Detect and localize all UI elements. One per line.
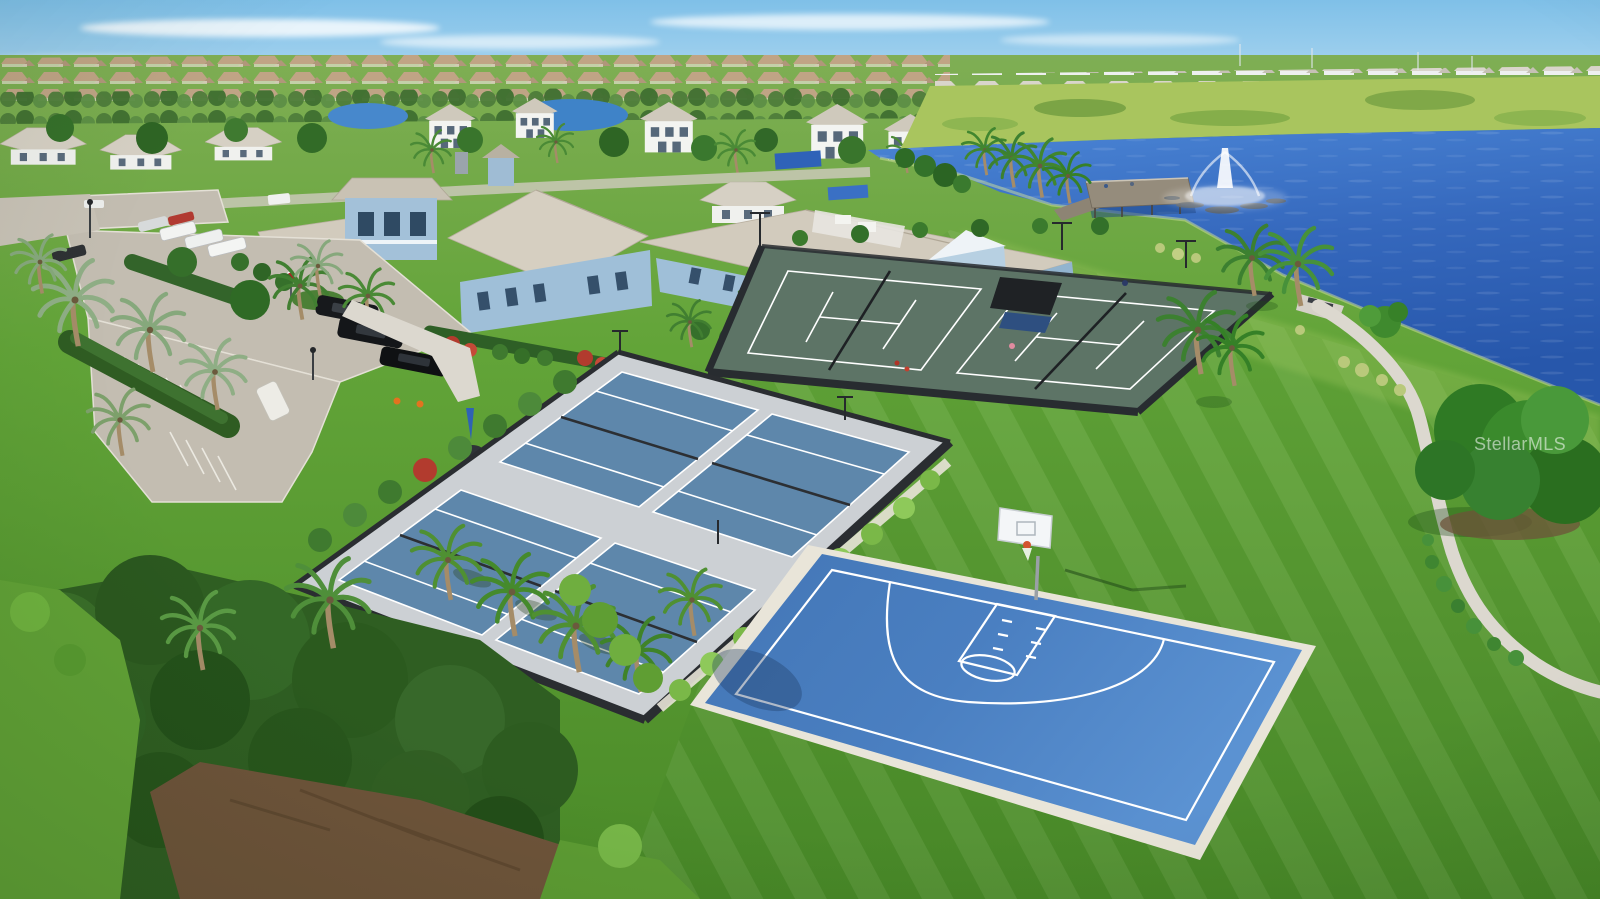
small-pond <box>328 103 408 129</box>
rim <box>1023 541 1031 549</box>
blue-canopy <box>774 150 821 169</box>
white-car <box>84 200 104 208</box>
traffic-cone <box>394 398 401 405</box>
chimney <box>455 152 468 174</box>
traffic-cone <box>417 401 424 408</box>
blue-canopy <box>828 185 869 201</box>
scene-canvas <box>0 0 1600 899</box>
aerial-photo: StellarMLS <box>0 0 1600 899</box>
